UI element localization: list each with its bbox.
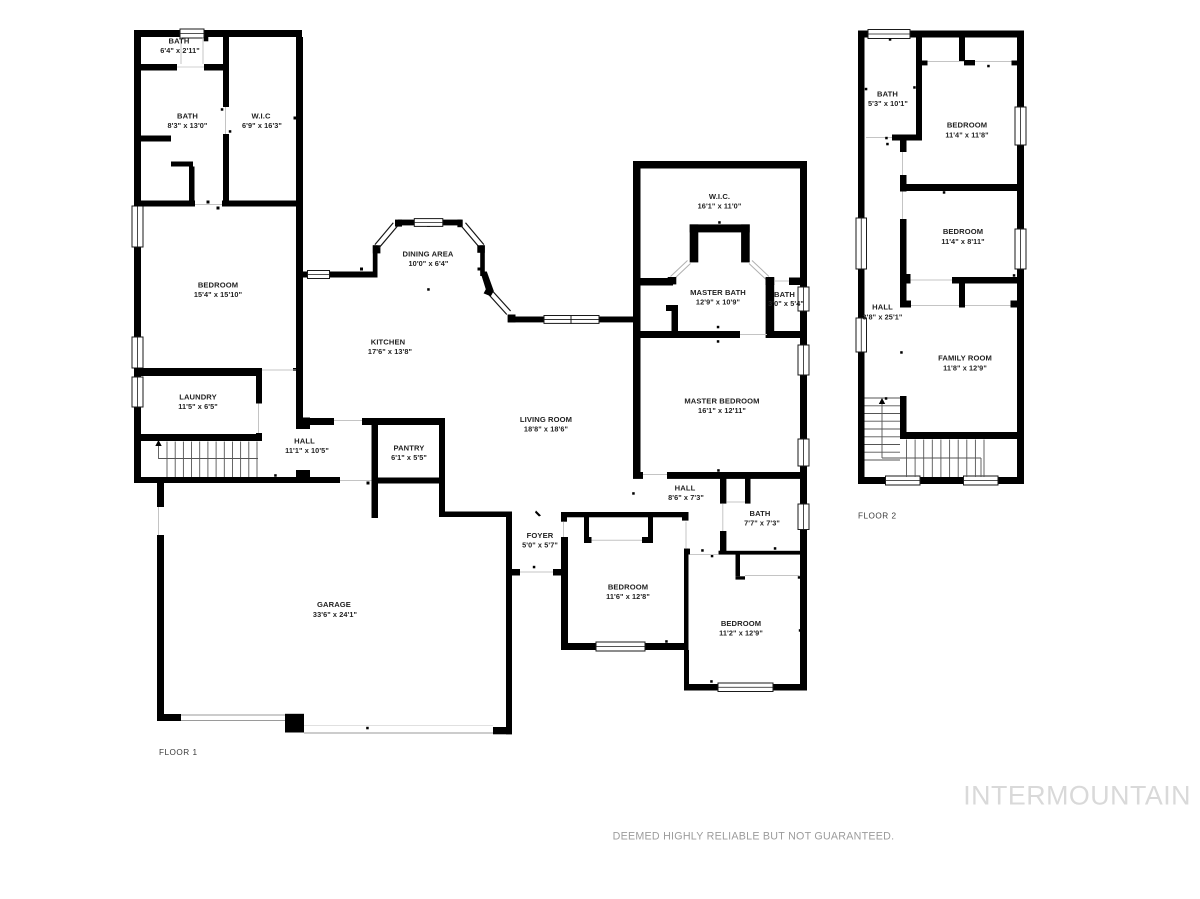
svg-text:18'8" x 18'6": 18'8" x 18'6": [524, 425, 568, 434]
svg-text:3'8" x 25'1": 3'8" x 25'1": [863, 313, 903, 322]
svg-text:11'4" x 8'11": 11'4" x 8'11": [941, 237, 984, 246]
svg-text:5'0" x 5'7": 5'0" x 5'7": [522, 541, 558, 550]
svg-text:8'6" x 7'3": 8'6" x 7'3": [668, 493, 704, 502]
svg-text:DEEMED HIGHLY RELIABLE BUT NOT: DEEMED HIGHLY RELIABLE BUT NOT GUARANTEE…: [613, 831, 895, 843]
svg-text:BATH: BATH: [177, 112, 198, 121]
svg-text:W.I.C: W.I.C: [251, 112, 270, 121]
svg-text:6'4" x 2'11": 6'4" x 2'11": [160, 46, 200, 55]
svg-text:BATH: BATH: [877, 90, 898, 99]
svg-text:12'9" x 10'9": 12'9" x 10'9": [696, 298, 740, 307]
svg-text:FLOOR 1: FLOOR 1: [159, 748, 198, 757]
svg-text:BATH: BATH: [169, 37, 190, 46]
svg-text:7'7" x 7'3": 7'7" x 7'3": [744, 519, 780, 528]
svg-text:16'1" x 12'11": 16'1" x 12'11": [698, 406, 746, 415]
svg-text:MASTER BATH: MASTER BATH: [690, 288, 746, 297]
svg-text:LIVING ROOM: LIVING ROOM: [520, 415, 572, 424]
svg-text:10'0" x 6'4": 10'0" x 6'4": [409, 259, 449, 268]
svg-text:HALL: HALL: [294, 437, 315, 446]
svg-text:11'8" x 12'9": 11'8" x 12'9": [943, 364, 987, 373]
svg-text:PANTRY: PANTRY: [394, 444, 425, 453]
svg-text:11'6" x 12'8": 11'6" x 12'8": [606, 592, 650, 601]
svg-text:15'4" x 15'10": 15'4" x 15'10": [194, 290, 242, 299]
svg-text:INTERMOUNTAIN: INTERMOUNTAIN: [963, 781, 1191, 811]
svg-text:GARAGE: GARAGE: [317, 600, 351, 609]
svg-text:BEDROOM: BEDROOM: [608, 583, 648, 592]
svg-text:BEDROOM: BEDROOM: [721, 619, 761, 628]
svg-text:11'1" x 10'5": 11'1" x 10'5": [285, 446, 329, 455]
svg-text:11'2" x 12'9": 11'2" x 12'9": [719, 629, 763, 638]
svg-text:W.I.C.: W.I.C.: [709, 192, 730, 201]
svg-text:BEDROOM: BEDROOM: [947, 121, 987, 130]
svg-text:KITCHEN: KITCHEN: [371, 338, 405, 347]
svg-text:8'3" x 13'0": 8'3" x 13'0": [168, 121, 208, 130]
svg-text:HALL: HALL: [675, 484, 696, 493]
svg-text:DINING AREA: DINING AREA: [402, 250, 453, 259]
svg-text:5'3" x 10'1": 5'3" x 10'1": [868, 99, 908, 108]
svg-text:11'5" x 6'5": 11'5" x 6'5": [178, 402, 218, 411]
svg-text:HALL: HALL: [872, 303, 893, 312]
svg-text:FOYER: FOYER: [527, 531, 554, 540]
svg-text:3'0" x 5'4": 3'0" x 5'4": [768, 299, 804, 308]
svg-text:FAMILY ROOM: FAMILY ROOM: [938, 354, 992, 363]
svg-text:BEDROOM: BEDROOM: [198, 281, 238, 290]
svg-text:6'1" x 5'5": 6'1" x 5'5": [391, 453, 427, 462]
svg-text:BATH: BATH: [774, 290, 795, 299]
svg-text:16'1" x 11'0": 16'1" x 11'0": [698, 202, 742, 211]
svg-text:17'6" x 13'8": 17'6" x 13'8": [368, 347, 412, 356]
svg-text:33'6" x 24'1": 33'6" x 24'1": [313, 610, 357, 619]
svg-text:MASTER BEDROOM: MASTER BEDROOM: [684, 397, 759, 406]
svg-text:LAUNDRY: LAUNDRY: [179, 393, 217, 402]
svg-text:FLOOR 2: FLOOR 2: [858, 512, 897, 521]
svg-text:6'9" x 16'3": 6'9" x 16'3": [242, 121, 282, 130]
svg-text:BEDROOM: BEDROOM: [943, 227, 983, 236]
svg-text:BATH: BATH: [750, 509, 771, 518]
svg-text:11'4" x 11'8": 11'4" x 11'8": [945, 131, 988, 140]
